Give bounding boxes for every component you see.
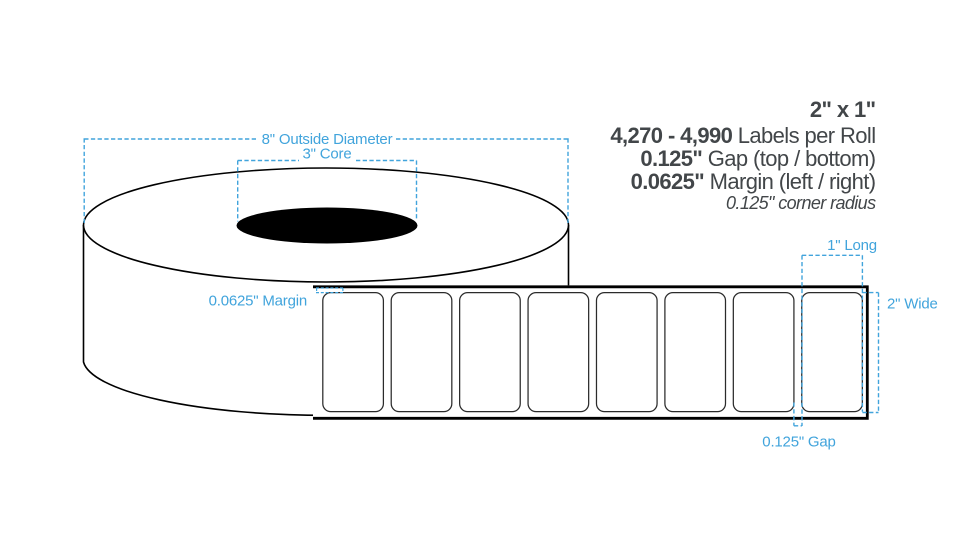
label-long-label: 1" Long <box>827 237 877 254</box>
spec-block: 2" x 1" 4,270 - 4,990 Labels per Roll 0.… <box>610 97 876 213</box>
spec-labels-per-roll-value: 4,270 - 4,990 <box>610 123 732 148</box>
spec-gap: 0.125" Gap (top / bottom) <box>640 146 875 171</box>
spec-margin-text: Margin (left / right) <box>704 169 875 194</box>
die-cut-label <box>528 293 589 412</box>
spec-margin-value: 0.0625" <box>631 169 705 194</box>
die-cut-label <box>596 293 657 412</box>
spec-gap-value: 0.125" <box>640 146 702 171</box>
die-cut-label <box>802 293 863 412</box>
spec-labels-per-roll-text: Labels per Roll <box>732 123 875 148</box>
die-cut-label <box>665 293 726 412</box>
label-roll-spec-diagram: 8" Outside Diameter 3" Core 0.0625" Marg… <box>0 0 977 557</box>
die-cut-label <box>460 293 521 412</box>
spec-labels-per-roll: 4,270 - 4,990 Labels per Roll <box>610 123 875 148</box>
die-cut-label <box>323 293 384 412</box>
label-wide-label: 2" Wide <box>887 296 938 313</box>
spec-corner-radius: 0.125" corner radius <box>726 193 876 213</box>
label-strip <box>313 285 869 419</box>
label-roll-diagram: 8" Outside Diameter 3" Core 0.0625" Marg… <box>0 0 977 557</box>
core-label: 3" Core <box>303 146 352 163</box>
margin-label: 0.0625" Margin <box>209 293 307 310</box>
die-cut-label <box>733 293 794 412</box>
spec-gap-text: Gap (top / bottom) <box>702 146 875 171</box>
die-cut-label <box>391 293 452 412</box>
gap-label: 0.125" Gap <box>762 434 835 451</box>
roll-core-hole <box>237 208 418 244</box>
spec-size: 2" x 1" <box>810 97 876 122</box>
spec-margin: 0.0625" Margin (left / right) <box>631 169 876 194</box>
